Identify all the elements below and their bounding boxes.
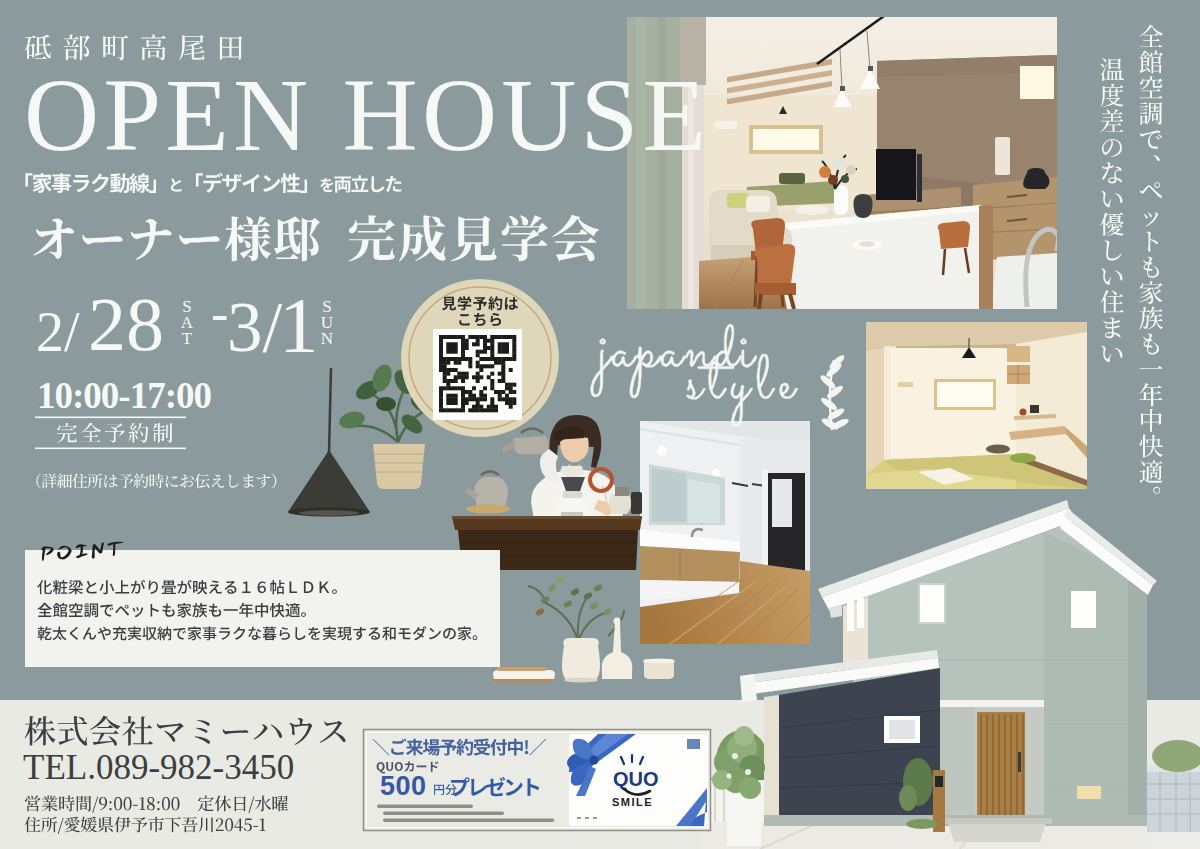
- svg-text:N: N: [321, 329, 333, 348]
- svg-text:OPEN HOUSE: OPEN HOUSE: [24, 57, 710, 172]
- svg-text:28: 28: [88, 282, 164, 366]
- svg-text:-: -: [211, 285, 228, 342]
- svg-text:T: T: [182, 329, 193, 348]
- svg-text:2/: 2/: [36, 301, 80, 363]
- svg-text:500: 500: [380, 771, 427, 801]
- svg-text:TEL.089-982-3450: TEL.089-982-3450: [23, 748, 294, 787]
- svg-text:QUO: QUO: [613, 768, 659, 790]
- svg-text:10:00-17:00: 10:00-17:00: [37, 375, 211, 416]
- svg-text:1: 1: [279, 281, 319, 368]
- svg-text:3/: 3/: [227, 288, 283, 366]
- svg-text:SMILE: SMILE: [612, 796, 653, 808]
